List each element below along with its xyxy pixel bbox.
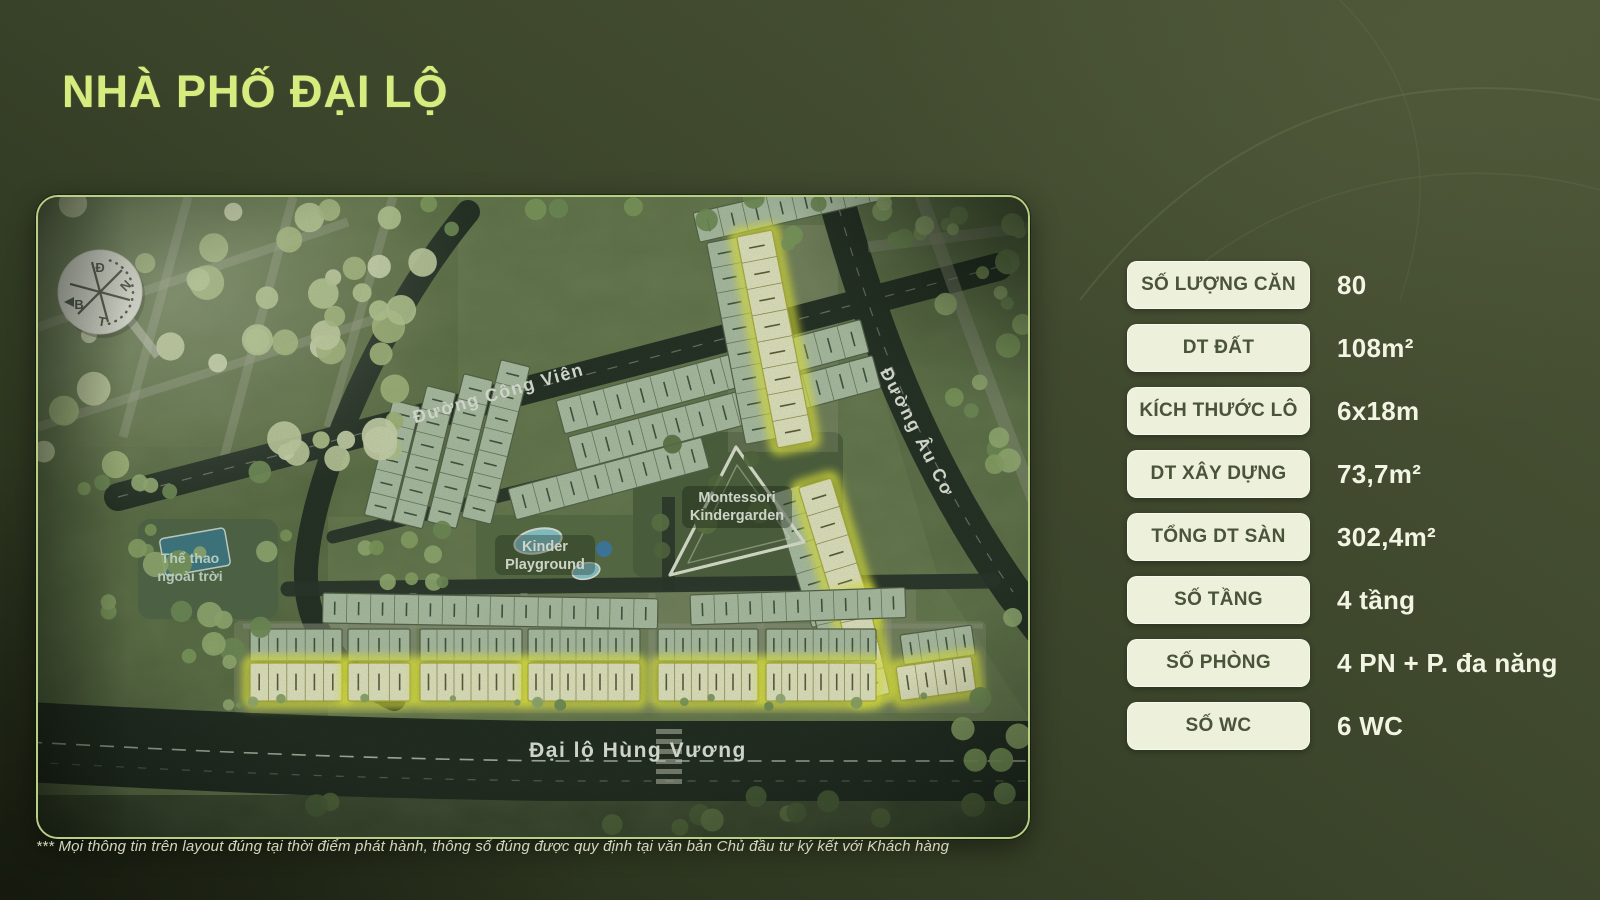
spec-label-pill: SỐ PHÒNG (1127, 639, 1310, 687)
spec-row: DT XÂY DỰNG73,7m² (1127, 450, 1558, 498)
site-plan-panel: Đường Công Viên Đường Âu Cơ Đại lộ Hùng … (36, 195, 1030, 839)
page-title: NHÀ PHỐ ĐẠI LỘ (62, 66, 449, 118)
slide: NHÀ PHỐ ĐẠI LỘ (0, 0, 1600, 900)
spec-value: 6x18m (1337, 396, 1419, 427)
spec-value: 80 (1337, 270, 1367, 301)
spec-value: 4 tầng (1337, 585, 1415, 616)
spec-label-pill: SỐ LƯỢNG CĂN (1127, 261, 1310, 309)
spec-label-pill: SỐ WC (1127, 702, 1310, 750)
spec-value: 4 PN + P. đa năng (1337, 648, 1558, 679)
spec-value: 73,7m² (1337, 459, 1421, 490)
spec-value: 6 WC (1337, 711, 1403, 742)
site-plan-map: Đường Công Viên Đường Âu Cơ Đại lộ Hùng … (38, 197, 1028, 837)
spec-label-pill: SỐ TẦNG (1127, 576, 1310, 624)
footnote: *** Mọi thông tin trên layout đúng tại t… (36, 838, 949, 855)
spec-panel: SỐ LƯỢNG CĂN80DT ĐẤT108m²KÍCH THƯỚC LÔ6x… (1127, 261, 1558, 750)
spec-label-pill: DT XÂY DỰNG (1127, 450, 1310, 498)
spec-row: DT ĐẤT108m² (1127, 324, 1558, 372)
spec-label-pill: TỔNG DT SÀN (1127, 513, 1310, 561)
spec-label-pill: KÍCH THƯỚC LÔ (1127, 387, 1310, 435)
spec-row: KÍCH THƯỚC LÔ6x18m (1127, 387, 1558, 435)
spec-row: SỐ LƯỢNG CĂN80 (1127, 261, 1558, 309)
spec-row: SỐ WC6 WC (1127, 702, 1558, 750)
background-ornament (1040, 0, 1600, 300)
spec-row: TỔNG DT SÀN302,4m² (1127, 513, 1558, 561)
spec-value: 302,4m² (1337, 522, 1436, 553)
spec-value: 108m² (1337, 333, 1414, 364)
spec-row: SỐ TẦNG4 tầng (1127, 576, 1558, 624)
spec-label-pill: DT ĐẤT (1127, 324, 1310, 372)
spec-row: SỐ PHÒNG4 PN + P. đa năng (1127, 639, 1558, 687)
